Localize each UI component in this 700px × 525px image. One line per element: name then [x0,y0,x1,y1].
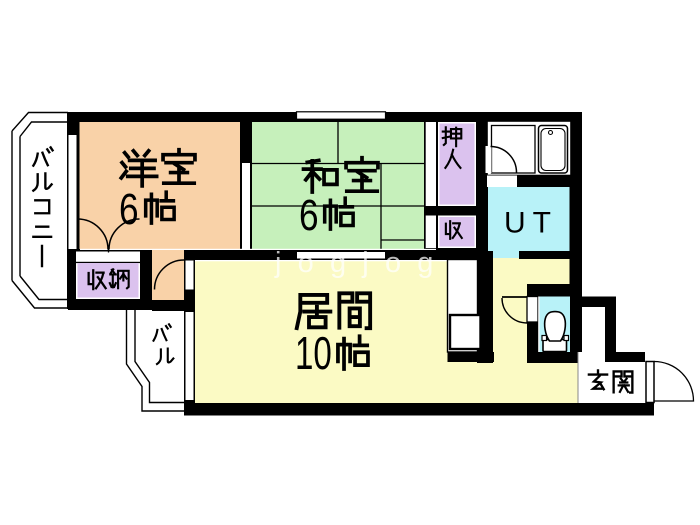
svg-text:6: 6 [299,191,319,240]
svg-text:jogjog: jogjog [274,247,450,279]
svg-text:UT: UT [504,207,558,240]
svg-text:10: 10 [295,329,332,379]
svg-text:6: 6 [119,185,139,234]
